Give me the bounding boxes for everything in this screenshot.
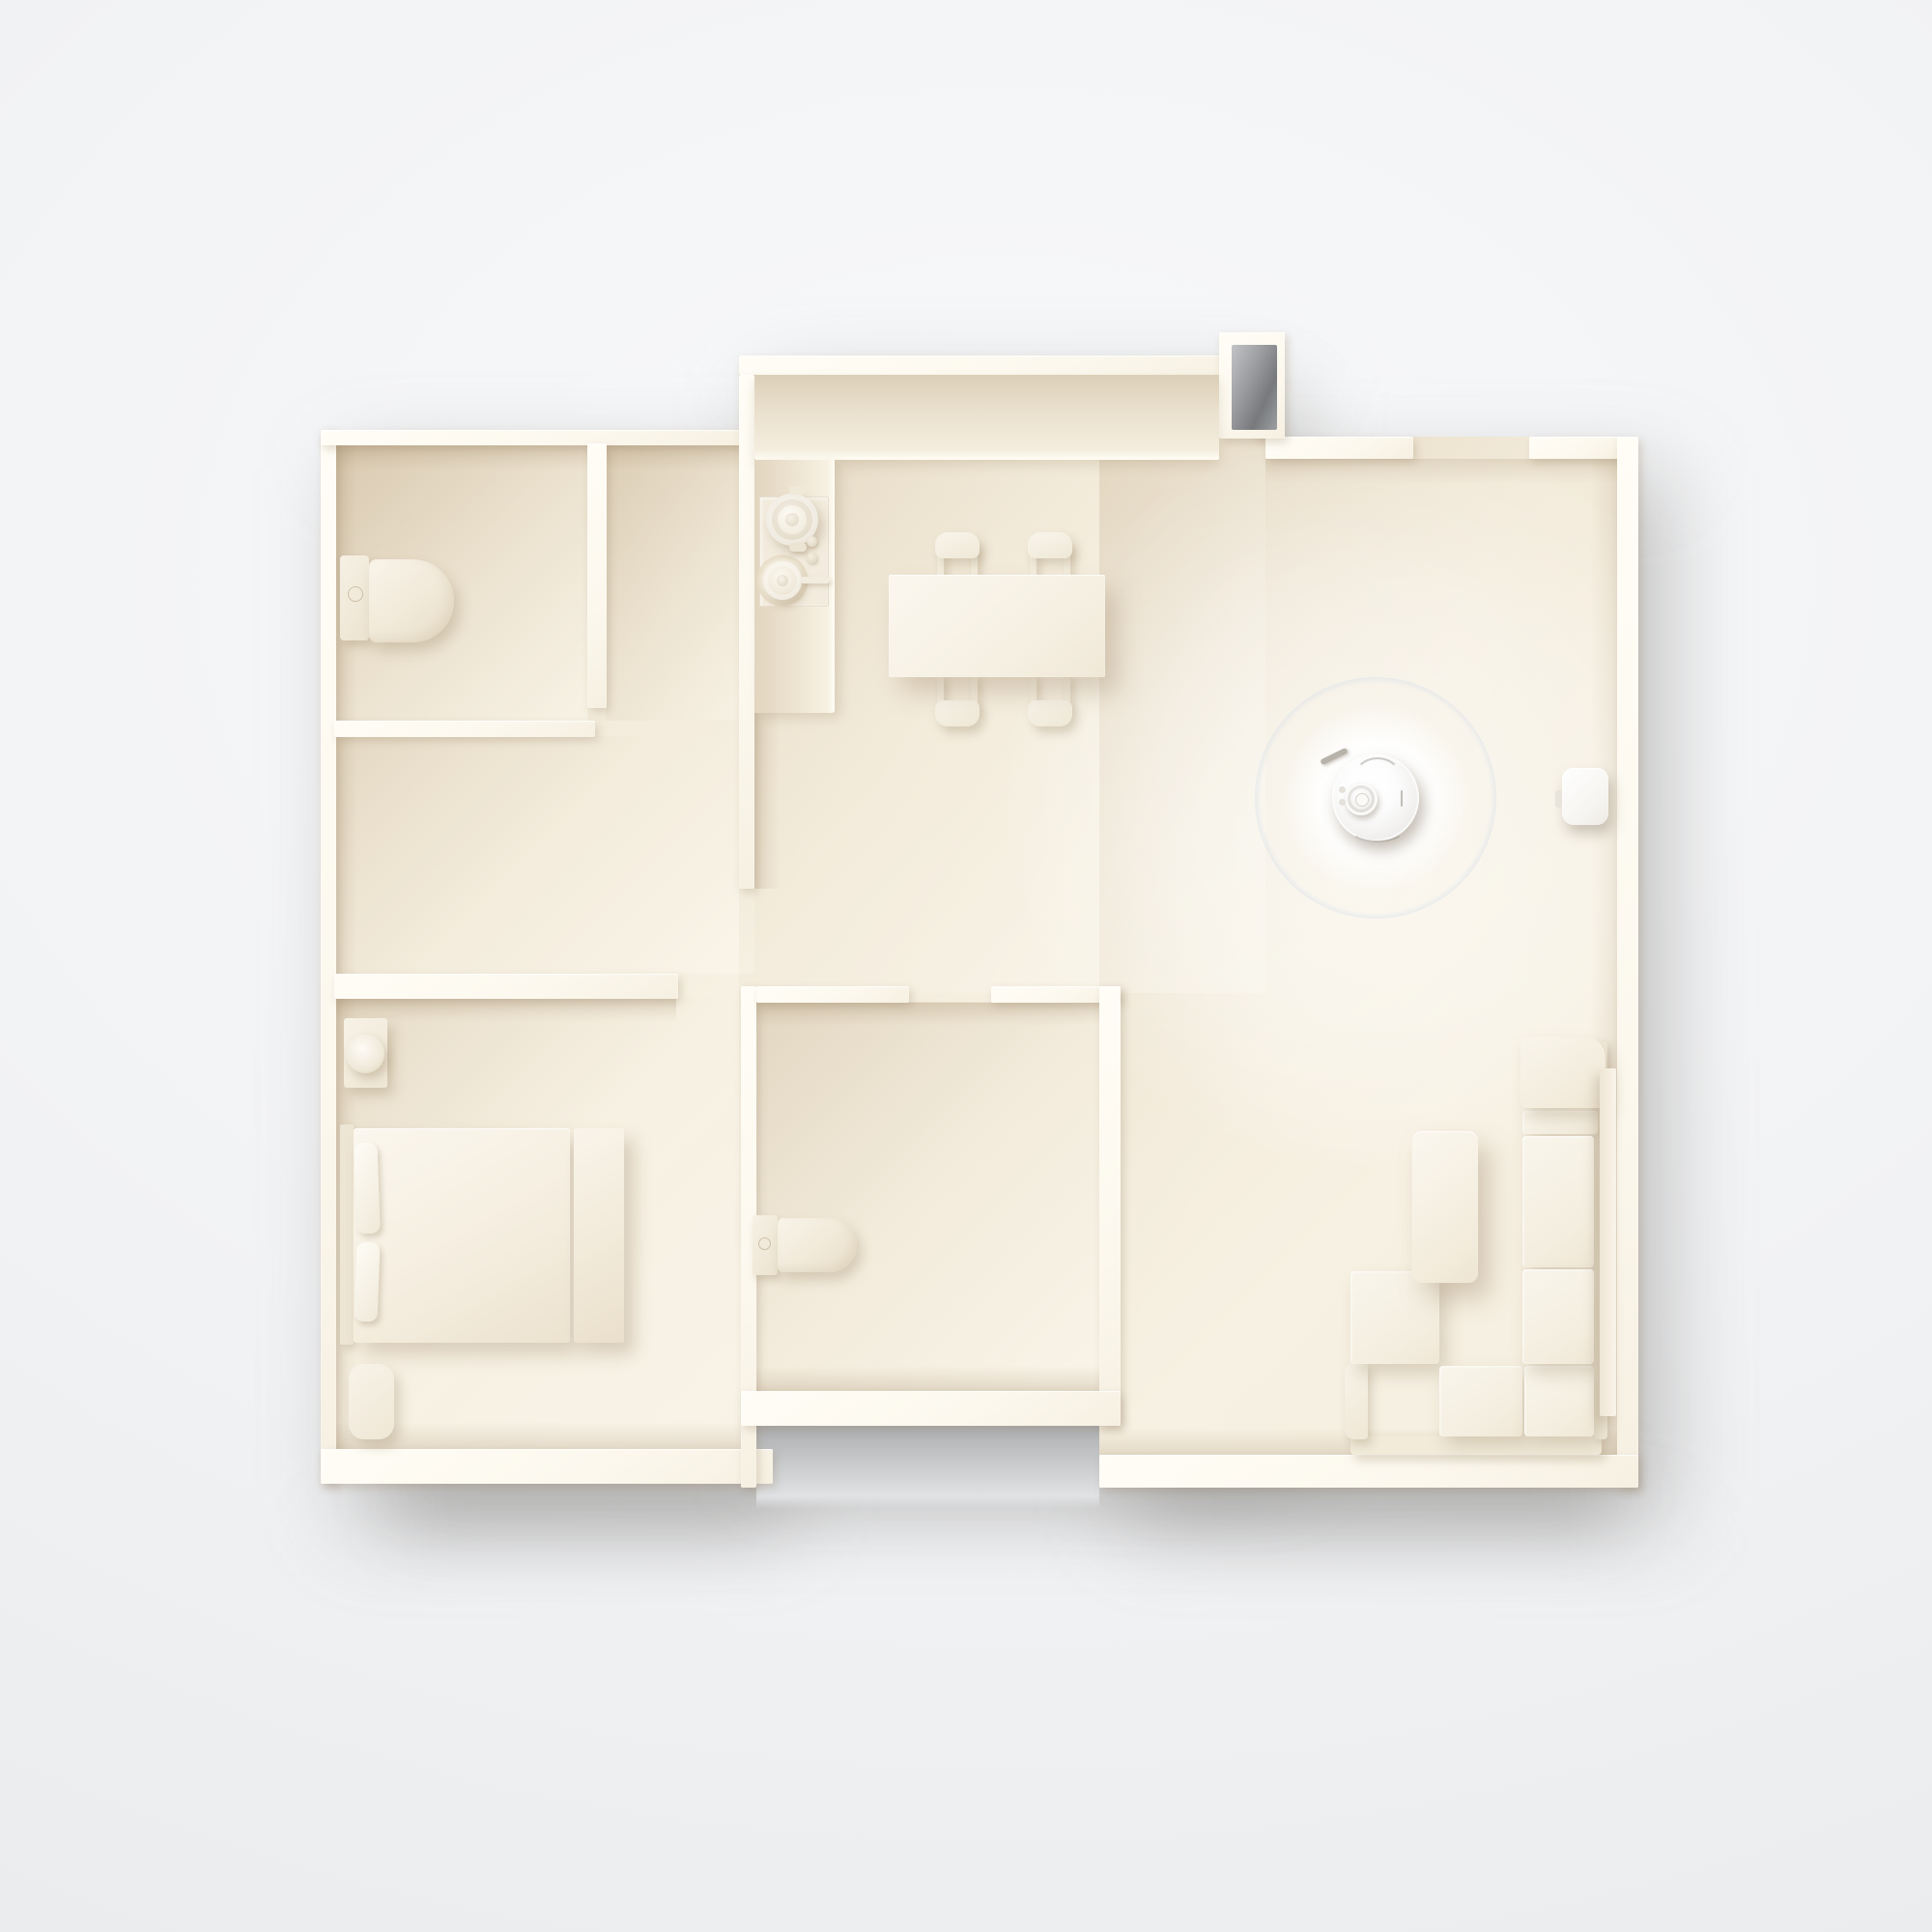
pot-small-knob — [777, 575, 788, 586]
door-sensor — [1562, 768, 1608, 825]
outer-wall-top-right-segment — [1265, 437, 1413, 459]
outer-wall-bottom-bedroom — [321, 1449, 773, 1484]
door-sensor-tab — [1555, 790, 1562, 808]
coffee-table — [1412, 1131, 1478, 1283]
bed-pillow-1 — [354, 1143, 380, 1235]
sofa-base-bottom-rail — [1350, 1435, 1602, 1455]
outer-wall-top-left-block — [321, 430, 754, 445]
robot-button-1 — [1339, 786, 1346, 793]
sliding-door-panel — [1600, 1068, 1616, 1416]
cooktop-knob-2 — [807, 553, 817, 563]
cooktop-knob-1 — [807, 536, 817, 547]
interior-wall-bedroom-top — [334, 974, 678, 999]
sofa-seat-right-2 — [1522, 1269, 1594, 1364]
bed-headboard — [340, 1124, 354, 1345]
dining-chair-top-left-back — [935, 532, 980, 558]
bathroom-toilet-flush-button — [758, 1237, 771, 1250]
interior-wall-toilet-bottom — [334, 721, 595, 737]
pan-handle — [801, 577, 830, 583]
bed-mattress — [354, 1128, 570, 1343]
toilet-room-flush-button — [348, 586, 363, 602]
dining-chair-bottom-right-back — [1028, 700, 1072, 726]
dining-table — [889, 575, 1105, 677]
bathroom-toilet-bowl — [778, 1218, 857, 1272]
sofa-seat-bottom-1 — [1439, 1366, 1522, 1436]
toilet-room-bowl — [369, 559, 454, 642]
robot-lidar-dot — [1355, 793, 1369, 807]
product-render-canvas: { "meta": { "description": "Top-down 3D … — [0, 0, 1932, 1932]
tall-cabinet-block — [1219, 332, 1285, 439]
bed-foot-bench — [574, 1128, 624, 1343]
sofa-seat-bottom-corner — [1524, 1366, 1594, 1436]
dining-chair-top-right-back — [1028, 532, 1072, 558]
robot-button-2 — [1339, 799, 1346, 806]
outer-wall-top-niche-stub — [1529, 437, 1619, 459]
bedroom-lamp — [346, 1035, 384, 1073]
outer-wall-bath-bottom — [741, 1391, 1121, 1426]
interior-wall-bath-right — [1099, 986, 1121, 1426]
bedroom-pouf — [349, 1364, 394, 1439]
outer-wall-left — [321, 430, 336, 1484]
outer-wall-bottom-living — [1099, 1455, 1638, 1488]
interior-wall-kitchen-left — [739, 375, 754, 889]
interior-wall-bath-top-left — [756, 986, 909, 1003]
sofa-seat-right-1 — [1522, 1136, 1594, 1267]
pot-large-knob — [785, 513, 799, 526]
signal-rings-clip — [740, 460, 1617, 1455]
sofa-chaise-module — [1350, 1271, 1439, 1364]
kitchen-counter-top-run — [754, 375, 1219, 460]
bed-pillow-2 — [355, 1242, 381, 1322]
sofa-back-cushion — [1522, 1111, 1598, 1134]
interior-wall-toilet-divider — [587, 443, 607, 708]
sofa-corner-module — [1520, 1037, 1605, 1108]
outer-wall-right — [1617, 437, 1638, 1488]
pot-large-handle-top — [789, 486, 807, 495]
sofa-armrest-left — [1345, 1362, 1368, 1439]
outer-wall-top-kitchen — [739, 355, 1265, 375]
robot-side-seam — [1401, 790, 1403, 807]
dining-chair-bottom-left-back — [935, 700, 980, 726]
stage — [0, 0, 1932, 1932]
pot-large-handle-bottom — [789, 543, 807, 552]
